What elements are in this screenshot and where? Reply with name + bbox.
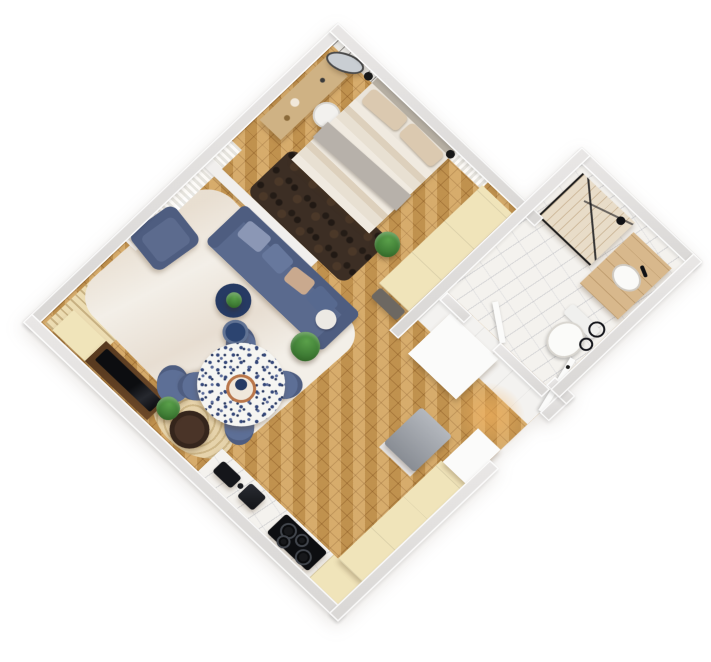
table-plant	[223, 289, 246, 310]
apartment-3d-floorplan	[41, 40, 635, 604]
shower-glass-edge	[586, 173, 597, 265]
vanity-basin	[606, 258, 647, 297]
floorplan-canvas	[0, 0, 711, 662]
